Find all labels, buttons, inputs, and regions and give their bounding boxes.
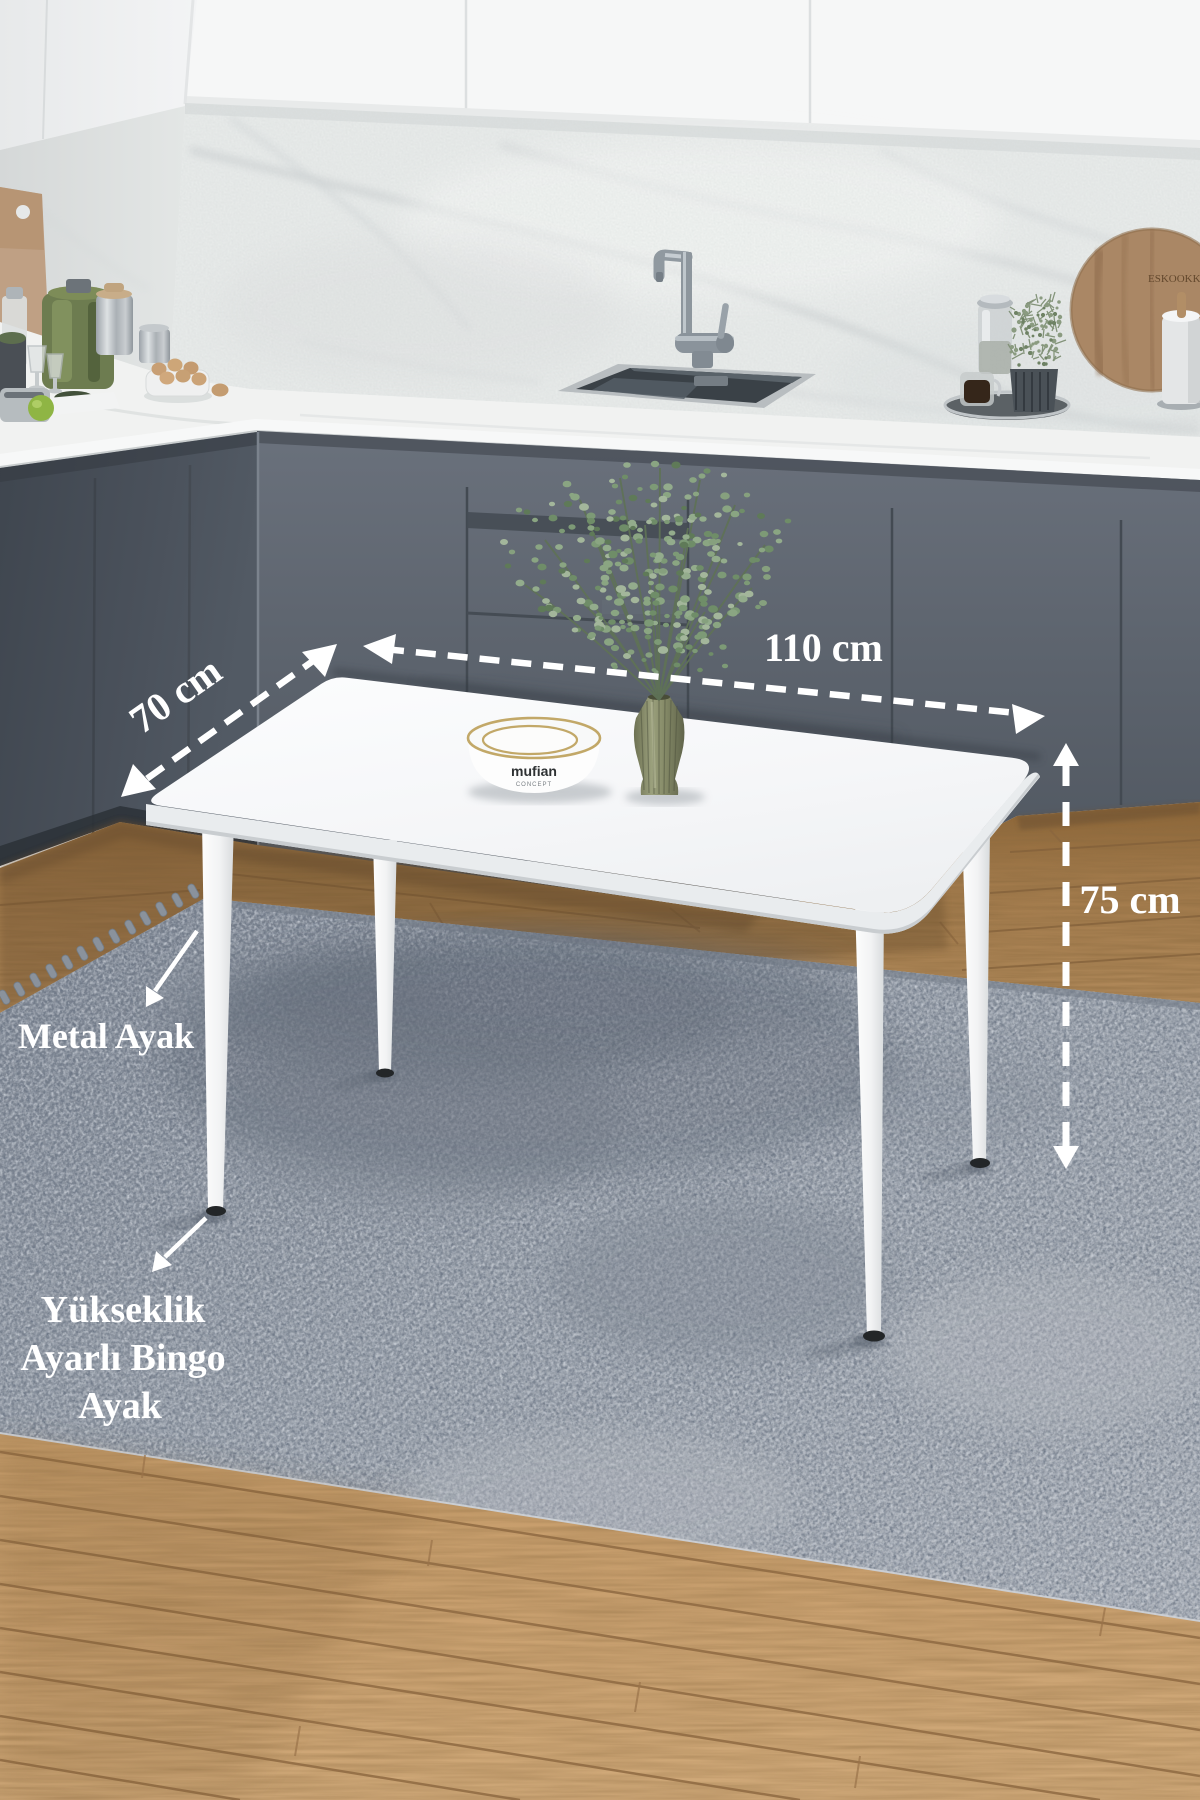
svg-text:CONCEPT: CONCEPT (516, 782, 552, 788)
svg-text:110 cm: 110 cm (764, 625, 883, 670)
svg-text:ESKOOKKI: ESKOOKKI (1148, 273, 1200, 285)
svg-text:75 cm: 75 cm (1079, 877, 1180, 922)
svg-text:mufian: mufian (511, 763, 557, 779)
svg-text:Yükseklik: Yükseklik (41, 1289, 207, 1331)
svg-text:Ayak: Ayak (78, 1385, 163, 1427)
svg-text:Ayarlı Bingo: Ayarlı Bingo (20, 1337, 225, 1379)
svg-text:Metal Ayak: Metal Ayak (18, 1016, 194, 1056)
